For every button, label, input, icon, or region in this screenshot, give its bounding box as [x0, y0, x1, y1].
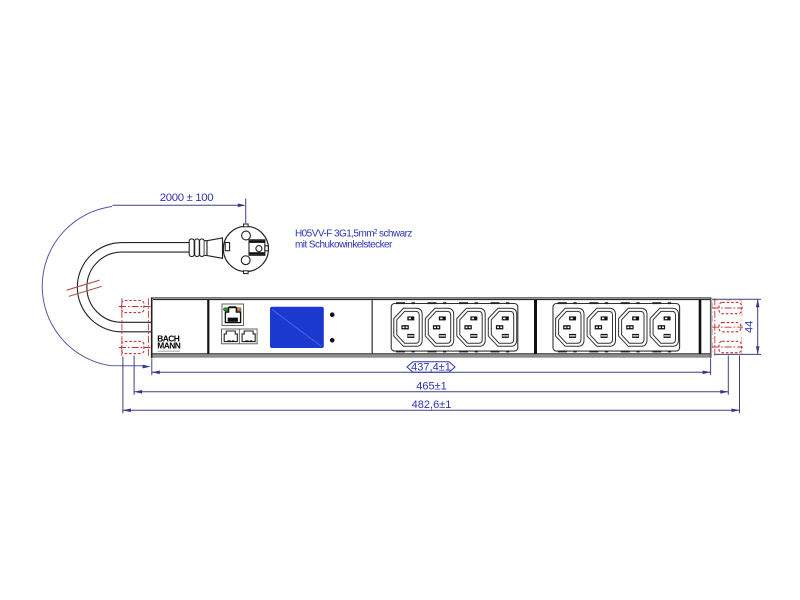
svg-text:mit Schukowinkelstecker: mit Schukowinkelstecker — [295, 240, 393, 251]
svg-text:482,6±1: 482,6±1 — [412, 399, 452, 411]
svg-text:2000 ± 100: 2000 ± 100 — [160, 192, 213, 204]
svg-text:H05VV-F 3G1,5mm² schwarz: H05VV-F 3G1,5mm² schwarz — [295, 229, 412, 240]
svg-text:44: 44 — [744, 321, 756, 333]
svg-text:437,4±1: 437,4±1 — [411, 361, 451, 373]
svg-text:MANN: MANN — [157, 340, 180, 350]
svg-text:465±1: 465±1 — [416, 381, 447, 393]
